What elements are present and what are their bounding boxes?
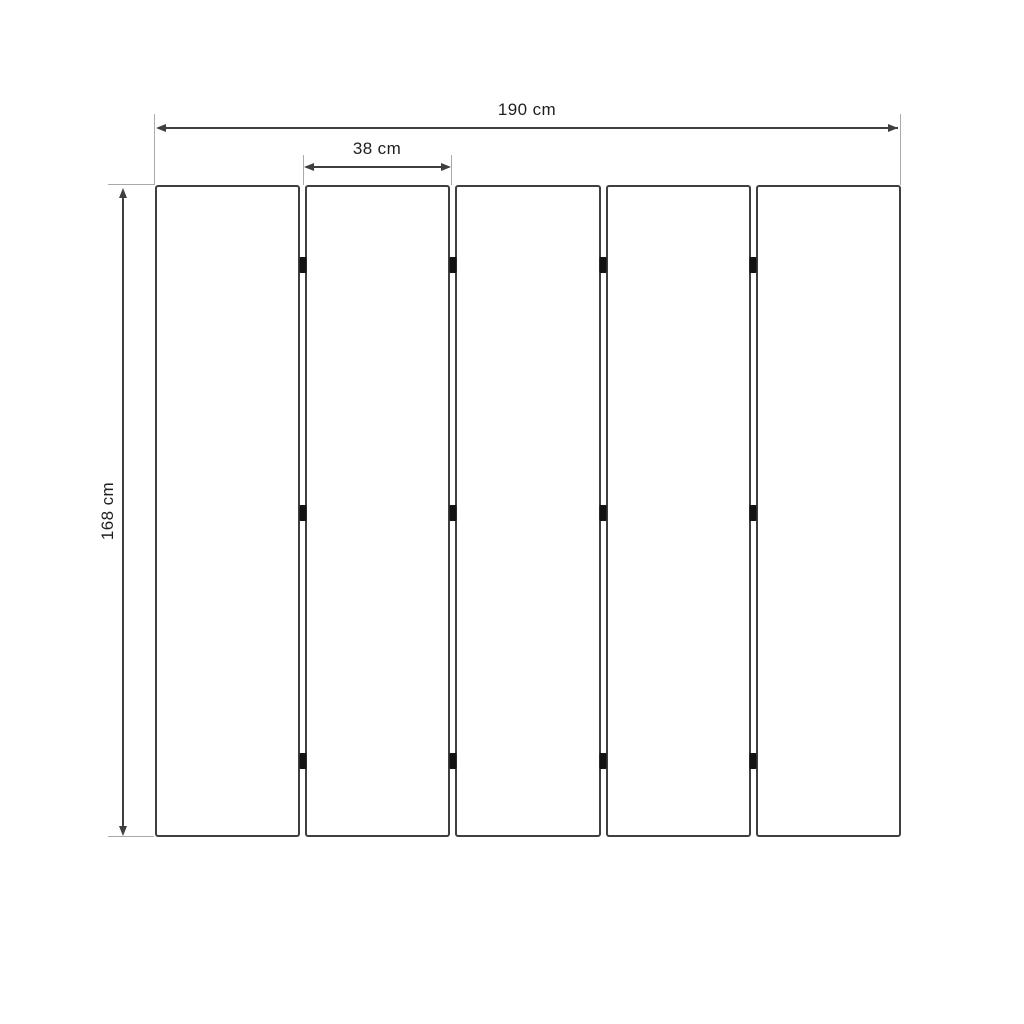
panel (756, 185, 901, 837)
hinge-mark (299, 753, 306, 769)
arrowhead-down-icon (119, 826, 127, 836)
extension-line-right (451, 155, 452, 185)
panel (455, 185, 600, 837)
hinge-mark (299, 505, 306, 521)
panel (606, 185, 751, 837)
dimension-label-panel-width: 38 cm (353, 139, 401, 159)
arrowhead-right-icon (888, 124, 898, 132)
dimension-line (158, 127, 898, 129)
hinge-mark (449, 753, 456, 769)
panel (155, 185, 300, 837)
arrowhead-left-icon (156, 124, 166, 132)
arrowhead-right-icon (441, 163, 451, 171)
extension-line-right (900, 114, 901, 185)
extension-line-left (154, 114, 155, 185)
hinge-mark (600, 505, 607, 521)
hinge-mark (750, 505, 757, 521)
hinge-mark (600, 257, 607, 273)
dimension-label-total-width: 190 cm (498, 100, 556, 120)
hinge-mark (750, 753, 757, 769)
hinge-mark (449, 505, 456, 521)
dimension-line (306, 166, 449, 168)
arrowhead-left-icon (304, 163, 314, 171)
panels-row (155, 185, 901, 837)
dimension-drawing-canvas: 190 cm 38 cm 168 cm (0, 0, 1024, 1024)
dimension-label-height: 168 cm (98, 482, 118, 540)
dimension-line (122, 191, 124, 832)
panel (305, 185, 450, 837)
arrowhead-up-icon (119, 188, 127, 198)
hinge-mark (600, 753, 607, 769)
extension-line-bottom (108, 836, 154, 837)
hinge-mark (750, 257, 757, 273)
extension-line-top (108, 184, 154, 185)
hinge-mark (449, 257, 456, 273)
hinge-mark (299, 257, 306, 273)
